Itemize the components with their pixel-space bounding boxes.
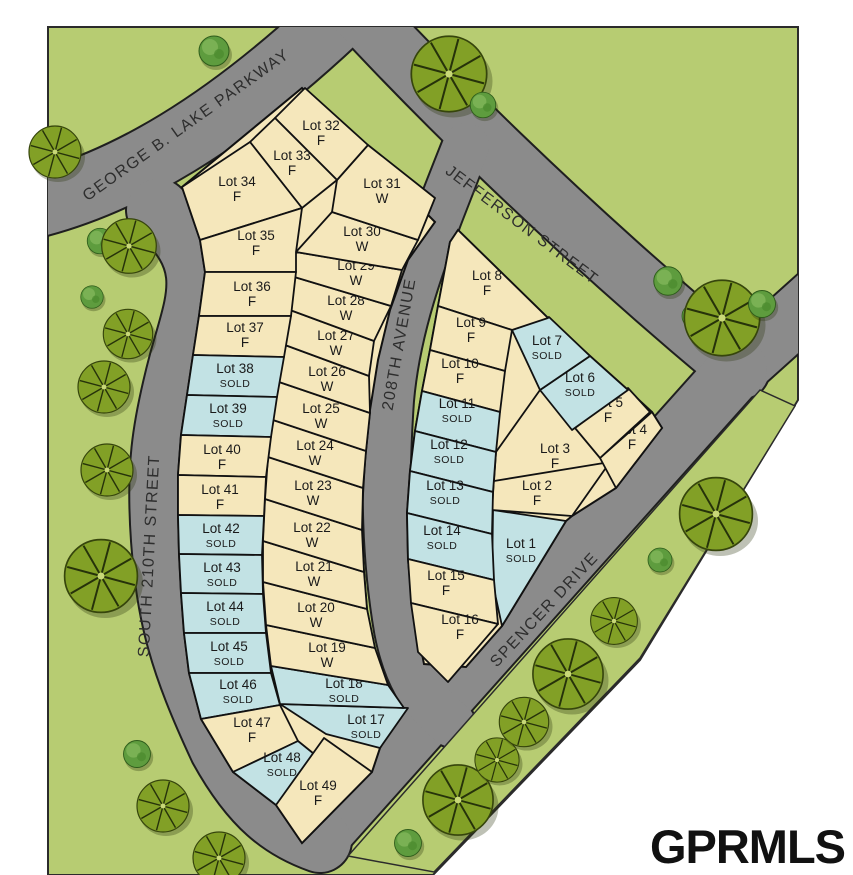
lot-39-label: Lot 39SOLD bbox=[209, 401, 247, 430]
lot-7-label: Lot 7SOLD bbox=[532, 333, 563, 362]
lot-13-label: Lot 13SOLD bbox=[426, 478, 464, 507]
lot-45-label: Lot 45SOLD bbox=[210, 639, 248, 668]
lot-6-label: Lot 6SOLD bbox=[565, 370, 596, 399]
lot-38-label: Lot 38SOLD bbox=[216, 361, 254, 390]
plat-map: Lot 1SOLDLot 2FLot 3FLot 4FLot 5FLot 6SO… bbox=[0, 0, 853, 875]
lot-46-label: Lot 46SOLD bbox=[219, 677, 257, 706]
lot-17-label: Lot 17SOLD bbox=[347, 712, 385, 741]
plat-map-figure: Lot 1SOLDLot 2FLot 3FLot 4FLot 5FLot 6SO… bbox=[0, 0, 853, 875]
lot-44-label: Lot 44SOLD bbox=[206, 599, 244, 628]
lot-1-label: Lot 1SOLD bbox=[506, 536, 537, 565]
lot-48-label: Lot 48SOLD bbox=[263, 750, 301, 779]
lot-14-label: Lot 14SOLD bbox=[423, 523, 461, 552]
lot-43-label: Lot 43SOLD bbox=[203, 560, 241, 589]
lot-42-label: Lot 42SOLD bbox=[202, 521, 240, 550]
lot-12-label: Lot 12SOLD bbox=[430, 437, 468, 466]
lot-11-label: Lot 11SOLD bbox=[439, 396, 476, 425]
gprmls-logo: GPRMLS bbox=[650, 819, 845, 874]
